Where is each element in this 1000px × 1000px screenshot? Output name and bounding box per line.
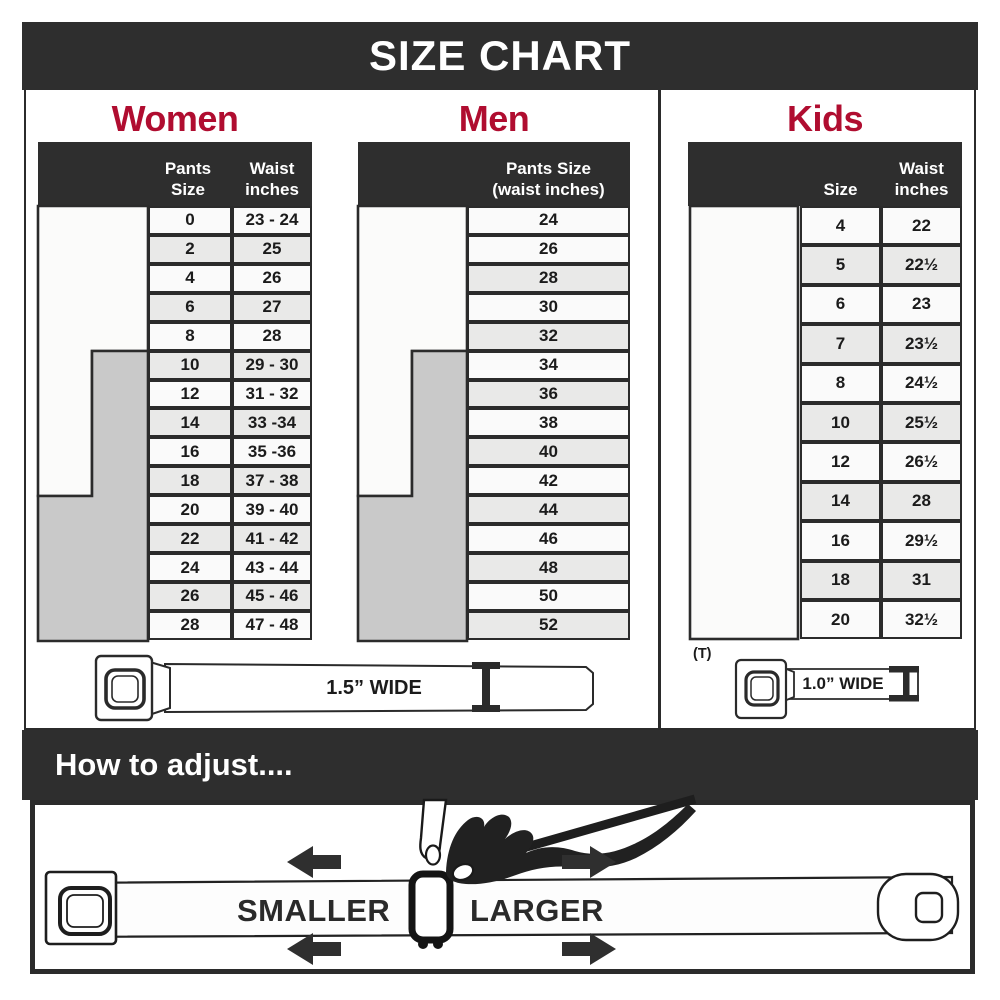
table-row: 38 <box>467 408 630 437</box>
size-cell: 26 <box>148 582 232 611</box>
kids-note: Note: Not intended for Toddler Sizes (T) <box>693 562 801 665</box>
waist-cell: 45 - 46 <box>232 582 312 611</box>
waist-cell: 37 - 38 <box>232 466 312 495</box>
waist-cell: 31 - 32 <box>232 380 312 409</box>
table-row: 40 <box>467 437 630 466</box>
how-to-adjust-heading: How to adjust.... <box>55 730 293 800</box>
size-cell: 18 <box>800 561 881 600</box>
kids-size-table: 4 22 5 22½ 6 23 7 23½ 8 24½ <box>800 206 962 639</box>
size-cell: 2 <box>148 235 232 264</box>
size-cell: 20 <box>148 495 232 524</box>
waist-cell: 28 <box>881 482 962 521</box>
table-row: 30 <box>467 293 630 322</box>
table-row: 18 37 - 38 <box>148 466 312 495</box>
size-cell: 28 <box>148 611 232 640</box>
size-cell: 14 <box>148 408 232 437</box>
men-xlarge-label: X-LARGE <box>416 378 466 611</box>
waist-cell: 26 <box>232 264 312 293</box>
size-cell: 40 <box>467 437 630 466</box>
kids-size-header: Size <box>800 180 881 200</box>
size-cell: 4 <box>800 206 881 245</box>
table-row: 24 43 - 44 <box>148 553 312 582</box>
adult-belt-width-label: 1.5” WIDE <box>304 677 444 700</box>
women-regular-size-label: REGULAR SIZE <box>47 213 86 490</box>
table-row: 42 <box>467 466 630 495</box>
women-table-header: Pants Size Waist inches <box>38 142 312 206</box>
size-cell: 0 <box>148 206 232 235</box>
size-cell: 46 <box>467 524 630 553</box>
table-row: 20 39 - 40 <box>148 495 312 524</box>
kids-section-divider <box>658 90 661 730</box>
size-cell: 22 <box>148 524 232 553</box>
table-row: 16 29½ <box>800 521 962 560</box>
size-cell: 16 <box>800 521 881 560</box>
waist-cell: 23 - 24 <box>232 206 312 235</box>
table-row: 12 26½ <box>800 442 962 481</box>
size-chart: SIZE CHART Women Men Kids Pants Size Wai… <box>0 0 1000 1000</box>
size-cell: 32 <box>467 322 630 351</box>
kids-waist-header: Waist inches <box>881 159 962 200</box>
size-cell: 50 <box>467 582 630 611</box>
men-section-title: Men <box>358 98 630 140</box>
table-row: 26 45 - 46 <box>148 582 312 611</box>
size-cell: 34 <box>467 351 630 380</box>
page-title: SIZE CHART <box>22 22 978 90</box>
size-cell: 18 <box>148 466 232 495</box>
women-xlarge-label: X-LARGE <box>96 378 146 611</box>
waist-cell: 41 - 42 <box>232 524 312 553</box>
waist-cell: 27 <box>232 293 312 322</box>
waist-cell: 47 - 48 <box>232 611 312 640</box>
table-row: 10 25½ <box>800 403 962 442</box>
waist-cell: 39 - 40 <box>232 495 312 524</box>
table-row: 8 28 <box>148 322 312 351</box>
waist-cell: 23 <box>881 285 962 324</box>
size-cell: 48 <box>467 553 630 582</box>
size-cell: 52 <box>467 611 630 640</box>
women-pants-size-header: Pants Size <box>146 159 230 200</box>
kids-section-title: Kids <box>688 98 962 140</box>
size-cell: 7 <box>800 324 881 363</box>
size-cell: 12 <box>800 442 881 481</box>
size-cell: 5 <box>800 245 881 284</box>
table-row: 10 29 - 30 <box>148 351 312 380</box>
table-row: 14 33 -34 <box>148 408 312 437</box>
size-cell: 16 <box>148 437 232 466</box>
size-cell: 30 <box>467 293 630 322</box>
waist-cell: 33 -34 <box>232 408 312 437</box>
table-row: 20 32½ <box>800 600 962 639</box>
waist-cell: 29½ <box>881 521 962 560</box>
table-row: 0 23 - 24 <box>148 206 312 235</box>
adjust-illustration-box <box>30 800 975 974</box>
table-row: 50 <box>467 582 630 611</box>
size-cell: 14 <box>800 482 881 521</box>
waist-cell: 22 <box>881 206 962 245</box>
table-row: 26 <box>467 235 630 264</box>
women-waist-header: Waist inches <box>232 159 312 200</box>
table-row: 7 23½ <box>800 324 962 363</box>
waist-cell: 28 <box>232 322 312 351</box>
waist-cell: 32½ <box>881 600 962 639</box>
table-row: 22 41 - 42 <box>148 524 312 553</box>
size-cell: 38 <box>467 408 630 437</box>
size-cell: 10 <box>800 403 881 442</box>
size-cell: 36 <box>467 380 630 409</box>
waist-cell: 31 <box>881 561 962 600</box>
table-row: 32 <box>467 322 630 351</box>
table-row: 34 <box>467 351 630 380</box>
kids-size-group-label: KIDS SIZE <box>721 322 764 535</box>
table-row: 6 23 <box>800 285 962 324</box>
table-row: 6 27 <box>148 293 312 322</box>
kids-belt-width-label: 1.0” WIDE <box>783 674 903 694</box>
waist-cell: 43 - 44 <box>232 553 312 582</box>
table-row: 14 28 <box>800 482 962 521</box>
table-row: 44 <box>467 495 630 524</box>
table-row: 52 <box>467 611 630 640</box>
size-cell: 12 <box>148 380 232 409</box>
waist-cell: 25 <box>232 235 312 264</box>
kids-table-header: Size Waist inches <box>688 142 962 206</box>
size-cell: 44 <box>467 495 630 524</box>
table-row: 4 26 <box>148 264 312 293</box>
size-cell: 4 <box>148 264 232 293</box>
smaller-label: SMALLER <box>237 893 387 929</box>
size-cell: 28 <box>467 264 630 293</box>
table-row: 28 47 - 48 <box>148 611 312 640</box>
table-row: 28 <box>467 264 630 293</box>
women-size-table: 0 23 - 24 2 25 4 26 6 27 8 28 <box>148 206 312 640</box>
table-row: 5 22½ <box>800 245 962 284</box>
table-row: 46 <box>467 524 630 553</box>
waist-cell: 29 - 30 <box>232 351 312 380</box>
table-row: 24 <box>467 206 630 235</box>
waist-cell: 25½ <box>881 403 962 442</box>
size-cell: 42 <box>467 466 630 495</box>
size-cell: 6 <box>148 293 232 322</box>
title-band: SIZE CHART <box>22 22 978 90</box>
table-row: 8 24½ <box>800 364 962 403</box>
waist-cell: 22½ <box>881 245 962 284</box>
table-row: 16 35 -36 <box>148 437 312 466</box>
table-row: 4 22 <box>800 206 962 245</box>
larger-label: LARGER <box>463 893 611 929</box>
men-size-table: 24 26 28 30 32 34 36 <box>467 206 630 640</box>
size-cell: 8 <box>148 322 232 351</box>
size-cell: 26 <box>467 235 630 264</box>
men-regular-size-label: REGULAR SIZE <box>367 213 406 490</box>
size-cell: 24 <box>467 206 630 235</box>
men-pants-size-header: Pants Size (waist inches) <box>467 159 630 200</box>
waist-cell: 24½ <box>881 364 962 403</box>
women-section-title: Women <box>38 98 312 140</box>
table-row: 18 31 <box>800 561 962 600</box>
waist-cell: 26½ <box>881 442 962 481</box>
waist-cell: 23½ <box>881 324 962 363</box>
table-row: 36 <box>467 380 630 409</box>
size-cell: 6 <box>800 285 881 324</box>
table-row: 2 25 <box>148 235 312 264</box>
table-row: 12 31 - 32 <box>148 380 312 409</box>
table-row: 48 <box>467 553 630 582</box>
size-cell: 8 <box>800 364 881 403</box>
waist-cell: 35 -36 <box>232 437 312 466</box>
size-cell: 24 <box>148 553 232 582</box>
size-cell: 20 <box>800 600 881 639</box>
size-cell: 10 <box>148 351 232 380</box>
men-table-header: Pants Size (waist inches) <box>358 142 630 206</box>
